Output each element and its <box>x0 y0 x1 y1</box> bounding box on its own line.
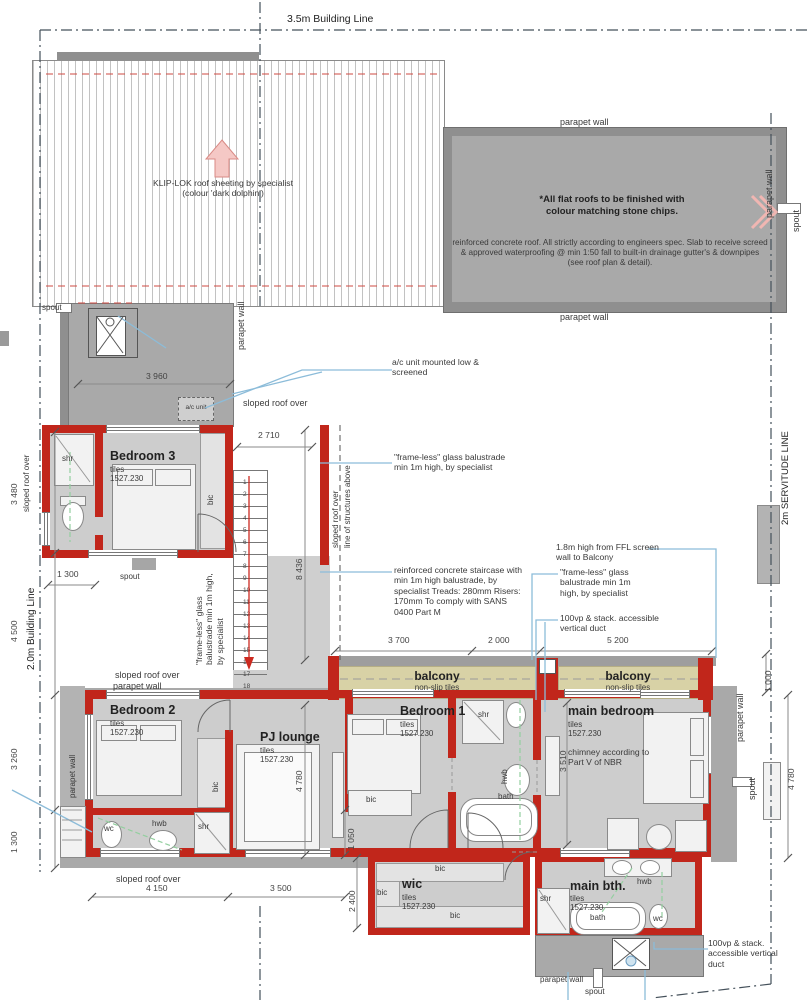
floor-plan-canvas: a/c unit 123456789101112131415161718 <box>0 0 810 1000</box>
sloped-roof-label: sloped roof over <box>331 491 341 548</box>
stair-tread: 15 <box>234 638 267 650</box>
dim-2000: 2 000 <box>488 635 510 645</box>
stair-tread: 16 <box>234 650 267 662</box>
window <box>106 425 200 433</box>
basin <box>640 860 660 875</box>
stair-tread: 8 <box>234 554 267 566</box>
vertical-duct <box>539 659 556 674</box>
room-label-pj-lounge: PJ lounge <box>260 730 320 744</box>
bath-tub-inner <box>466 804 532 836</box>
shr-label: shr <box>478 710 489 720</box>
dim-3510: 3 510 <box>558 750 568 772</box>
finish-code: 1527.230 <box>110 728 143 738</box>
planter <box>60 806 86 858</box>
bath-label: bath <box>498 792 514 802</box>
stair-tread: 11 <box>234 590 267 602</box>
wc-pan <box>506 702 526 728</box>
balustrade-note-rotated: "frame-less" glass balustrade min 1m hig… <box>194 565 225 665</box>
wc-pan <box>62 502 84 531</box>
dim-2710: 2 710 <box>258 430 280 440</box>
balcony-label: balcony <box>338 669 536 683</box>
basin <box>149 830 177 851</box>
dim-1300: 1 300 <box>57 569 79 579</box>
flat-roof-title: *All flat roofs to be finished with colo… <box>528 194 696 217</box>
klip-lok-note: KLIP-LOK roof sheeting by specialist (co… <box>148 178 298 199</box>
spout-label: spout <box>42 303 62 313</box>
window <box>42 512 50 546</box>
servitude-structure <box>757 505 780 584</box>
dim-4150: 4 150 <box>146 883 168 893</box>
spout-label: spout <box>120 572 140 582</box>
parapet-label: parapet wall <box>113 681 162 692</box>
parapet-label: parapet wall <box>764 169 775 218</box>
sofa-cushions <box>244 752 312 842</box>
chimney-shaft-inner <box>96 316 126 356</box>
stair-tread: 13 <box>234 614 267 626</box>
bedroom3-bic <box>200 433 227 549</box>
stair-tread: 5 <box>234 518 267 530</box>
spout-stub-bedroom3 <box>132 558 156 570</box>
shower-tray <box>462 700 504 744</box>
staircase-note: reinforced concrete staircase with min 1… <box>394 565 526 617</box>
finish-code: 1527.230 <box>400 729 433 739</box>
stair-tread: 1 <box>234 470 267 482</box>
duct-note-mid: 100vp & stack. accessible vertical duct <box>560 613 678 634</box>
finish-code: 1527.230 <box>260 755 293 765</box>
ac-unit-box: a/c unit <box>178 397 214 421</box>
flat-roof-body: reinforced concrete roof. All strictly a… <box>452 238 768 268</box>
stair-tread: 10 <box>234 578 267 590</box>
shr-label: shr <box>540 894 551 904</box>
pillow <box>155 469 191 486</box>
dim-2400: 2 400 <box>347 890 357 912</box>
parapet-label: parapet wall <box>540 975 583 985</box>
pillow <box>140 725 176 741</box>
left-building-line-label: 2.0m Building Line <box>26 588 38 670</box>
stair-tread: 7 <box>234 542 267 554</box>
stair-tread: 18 <box>234 674 267 686</box>
bedroom2-bic <box>197 738 227 808</box>
balcony-finish: non-slip tiles <box>338 683 536 692</box>
balcony-finish: non-slip tiles <box>558 683 698 692</box>
servitude-line-label: 2m SERVITUDE LINE <box>780 431 791 525</box>
spout-stub-bottom <box>593 968 603 988</box>
dim-4500: 4 500 <box>9 620 19 642</box>
bic-label: bic <box>435 864 445 874</box>
dim-3500: 3 500 <box>270 883 292 893</box>
ac-note: a/c unit mounted low & screened <box>392 357 502 378</box>
sloped-roof-label: sloped roof over <box>115 670 180 681</box>
dim-1050: 1 050 <box>346 828 356 850</box>
chair <box>607 818 639 850</box>
duct-shaft <box>612 938 650 970</box>
sloped-roof-label: sloped roof over <box>243 398 308 409</box>
dim-5200: 5 200 <box>607 635 629 645</box>
hwb-label: hwb <box>637 877 652 887</box>
chimney-note: chimney according to Part V of NBR <box>568 747 660 768</box>
room-label-wic: wic <box>402 877 422 891</box>
finish-code: 1527.230 <box>402 902 435 912</box>
stair-tread: 6 <box>234 530 267 542</box>
balustrade-note: "frame-less" glass balustrade min 1m hig… <box>394 452 509 473</box>
hwb-label: hwb <box>500 769 510 784</box>
balcony-label: balcony <box>558 669 698 683</box>
balustrade-note-right: "frame-less" glass balustrade min 1m hig… <box>560 567 650 598</box>
wc-label: wc <box>104 824 114 834</box>
dim-4780: 4 780 <box>786 768 796 790</box>
pillow <box>690 718 704 756</box>
hwb-label: hwb <box>152 819 167 829</box>
bic-label: bic <box>206 495 216 505</box>
bedroom1-bic <box>348 790 412 816</box>
spout-label: spout <box>585 987 605 997</box>
finish-code: 1527.230 <box>568 729 601 739</box>
room-label-bedroom3: Bedroom 3 <box>110 449 175 463</box>
parapet-label: parapet wall <box>68 755 78 798</box>
chair <box>675 820 707 852</box>
parapet-label: parapet wall <box>236 301 247 350</box>
dim-1300: 1 300 <box>9 831 19 853</box>
line-of-structures-label: line of structures above <box>343 465 353 548</box>
boundary-stub <box>0 331 9 346</box>
duct-note-bottom: 100vp & stack. accessible vertical duct <box>708 938 780 969</box>
balcony2-labels: balcony non-slip tiles <box>558 669 698 692</box>
finish-code: 1527.230 <box>570 903 603 913</box>
window <box>88 550 178 558</box>
shower-tray <box>54 434 94 486</box>
shr-label: shr <box>62 454 73 464</box>
stair-tread: 12 <box>234 602 267 614</box>
stair-tread: 2 <box>234 482 267 494</box>
roof-ridge-bar <box>57 52 259 61</box>
flat-roof <box>452 136 776 302</box>
parapet-label: parapet wall <box>560 117 609 128</box>
dim-3480: 3 480 <box>9 483 19 505</box>
stair-tread: 4 <box>234 506 267 518</box>
room-label-main-bedroom: main bedroom <box>568 704 654 718</box>
pillow <box>690 760 704 798</box>
room-label-bedroom1: Bedroom 1 <box>400 704 465 718</box>
spout-label: spout <box>747 778 758 800</box>
sloped-roof-label: sloped roof over <box>22 455 32 512</box>
spout-label: spout <box>791 210 802 232</box>
balcony1-labels: balcony non-slip tiles <box>338 669 536 692</box>
dim-3700: 3 700 <box>388 635 410 645</box>
pillow <box>352 719 384 735</box>
room-label-main-bath: main bth. <box>570 879 626 893</box>
basin <box>612 860 632 875</box>
dim-1000: 1 000 <box>763 670 773 692</box>
screen-wall-note: 1.8m high from FFL screen wall to Balcon… <box>556 542 668 563</box>
tv-unit <box>332 752 344 838</box>
dim-3960: 3 960 <box>146 371 168 381</box>
dim-8436: 8 436 <box>294 558 304 580</box>
parapet-label: parapet wall <box>560 312 609 323</box>
stair-tread: 3 <box>234 494 267 506</box>
shower-tray <box>194 812 230 854</box>
bic-label: bic <box>450 911 460 921</box>
finish-code: 1527.230 <box>110 474 143 484</box>
bic-label: bic <box>366 795 376 805</box>
balcony-slab-edge <box>328 656 716 666</box>
room-label-bedroom2: Bedroom 2 <box>110 703 175 717</box>
bic-label: bic <box>377 888 387 898</box>
shr-label: shr <box>198 822 209 832</box>
ac-unit-label: a/c unit <box>179 404 213 411</box>
window <box>85 714 93 800</box>
stair-tread: 9 <box>234 566 267 578</box>
stair-tread: 17 <box>234 662 267 674</box>
round-table <box>646 824 672 850</box>
stair-treads: 123456789101112131415161718 <box>233 470 268 670</box>
parapet-label: parapet wall <box>735 693 746 742</box>
dim-4780: 4 780 <box>294 770 304 792</box>
stair-tread: 14 <box>234 626 267 638</box>
external-chimney <box>763 762 781 820</box>
dim-3260: 3 260 <box>9 748 19 770</box>
bic-label: bic <box>211 782 221 792</box>
eave-bottom <box>60 856 368 868</box>
top-building-line-label: 3.5m Building Line <box>287 13 373 26</box>
parapet-right-band <box>711 686 737 862</box>
bath-label: bath <box>590 913 606 923</box>
wc-label: wc <box>653 914 663 924</box>
